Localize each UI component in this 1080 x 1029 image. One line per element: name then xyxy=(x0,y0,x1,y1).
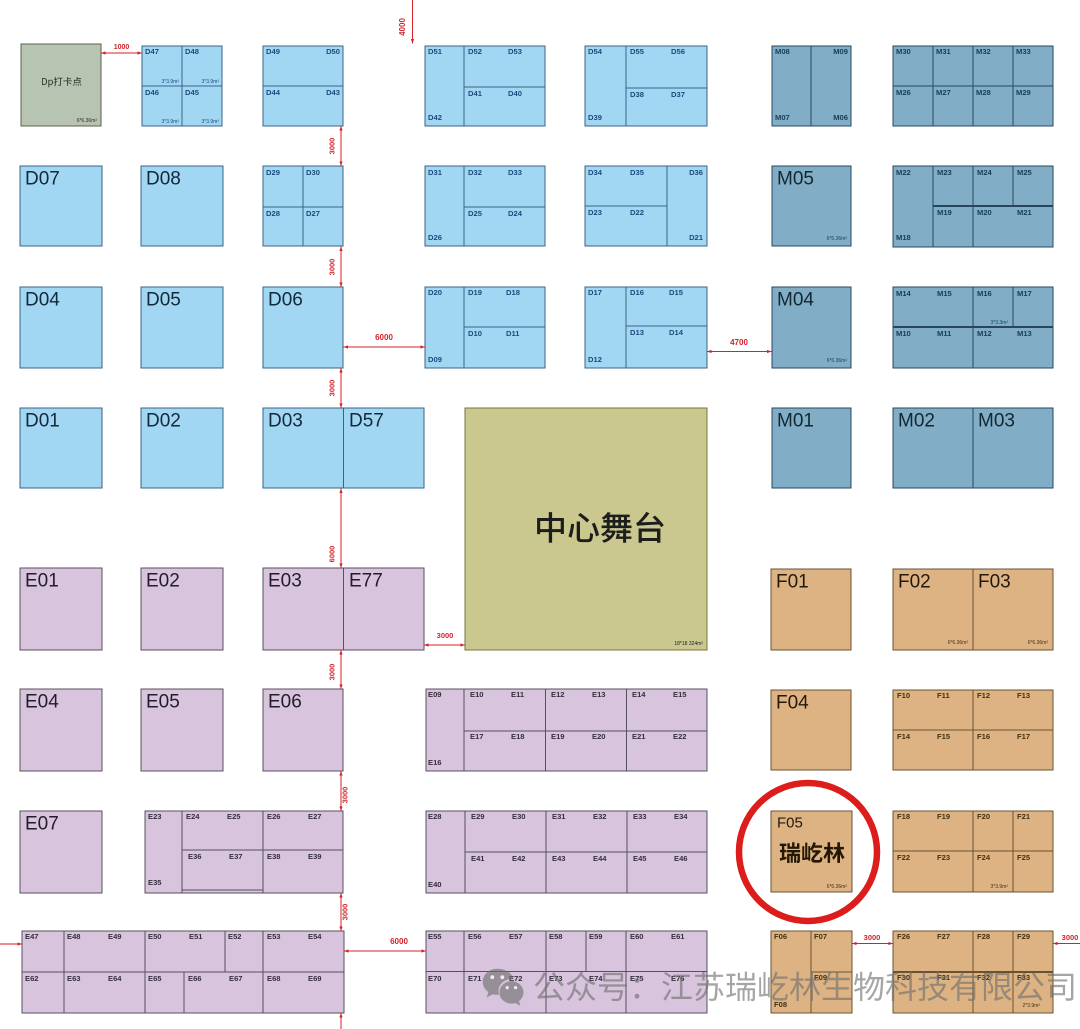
svg-text:E42: E42 xyxy=(512,854,526,863)
svg-text:6*6.36m²: 6*6.36m² xyxy=(827,358,848,364)
svg-text:F07: F07 xyxy=(814,932,827,941)
svg-text:M06: M06 xyxy=(833,113,848,122)
svg-text:E68: E68 xyxy=(267,974,281,983)
svg-text:E26: E26 xyxy=(267,812,281,821)
svg-text:F02: F02 xyxy=(898,572,931,593)
svg-text:F06: F06 xyxy=(774,932,787,941)
svg-text:3000: 3000 xyxy=(341,904,350,921)
svg-text:E66: E66 xyxy=(188,974,202,983)
svg-text:F10: F10 xyxy=(897,691,910,700)
svg-text:D13: D13 xyxy=(630,328,644,337)
svg-text:3000: 3000 xyxy=(328,138,337,155)
svg-text:E34: E34 xyxy=(674,812,688,821)
svg-text:6000: 6000 xyxy=(375,333,393,342)
svg-text:D32: D32 xyxy=(468,168,482,177)
svg-text:F08: F08 xyxy=(774,1000,787,1009)
svg-text:E10: E10 xyxy=(470,690,484,699)
svg-text:D41: D41 xyxy=(468,89,483,98)
svg-text:E69: E69 xyxy=(308,974,322,983)
svg-text:3000: 3000 xyxy=(1062,933,1079,942)
svg-text:D25: D25 xyxy=(468,209,483,218)
svg-text:F11: F11 xyxy=(937,691,950,700)
svg-text:D27: D27 xyxy=(306,209,320,218)
svg-text:D49: D49 xyxy=(266,47,280,56)
svg-text:M17: M17 xyxy=(1017,289,1032,298)
svg-text:D57: D57 xyxy=(349,411,384,432)
svg-text:E54: E54 xyxy=(308,932,322,941)
svg-text:E45: E45 xyxy=(633,854,647,863)
svg-text:6*6.36m²: 6*6.36m² xyxy=(827,236,848,242)
svg-text:D18: D18 xyxy=(506,288,520,297)
svg-text:D31: D31 xyxy=(428,168,443,177)
svg-text:D15: D15 xyxy=(669,288,684,297)
svg-text:D09: D09 xyxy=(428,355,442,364)
svg-text:3000: 3000 xyxy=(341,787,350,804)
svg-text:M29: M29 xyxy=(1016,88,1031,97)
svg-text:M13: M13 xyxy=(1017,329,1032,338)
svg-text:E04: E04 xyxy=(25,692,59,713)
svg-text:E67: E67 xyxy=(229,974,243,983)
svg-text:E29: E29 xyxy=(471,812,485,821)
svg-text:E48: E48 xyxy=(67,932,81,941)
svg-text:3*3.9m²: 3*3.9m² xyxy=(990,884,1008,890)
svg-text:E71: E71 xyxy=(468,974,482,983)
svg-text:E64: E64 xyxy=(108,974,122,983)
svg-text:M15: M15 xyxy=(937,289,953,298)
svg-text:6*6.36m²: 6*6.36m² xyxy=(77,118,98,124)
svg-text:E15: E15 xyxy=(673,690,687,699)
svg-text:D46: D46 xyxy=(145,88,159,97)
svg-text:E57: E57 xyxy=(509,932,523,941)
svg-text:3000: 3000 xyxy=(328,380,337,397)
svg-text:D34: D34 xyxy=(588,168,603,177)
svg-text:D14: D14 xyxy=(669,328,684,337)
svg-text:D47: D47 xyxy=(145,47,159,56)
svg-text:D23: D23 xyxy=(588,208,602,217)
svg-text:E33: E33 xyxy=(633,812,647,821)
svg-text:F28: F28 xyxy=(977,932,990,941)
svg-text:F29: F29 xyxy=(1017,932,1030,941)
svg-text:3*3.9m²: 3*3.9m² xyxy=(161,119,179,125)
svg-text:D35: D35 xyxy=(630,168,645,177)
svg-text:M23: M23 xyxy=(937,168,952,177)
svg-text:D45: D45 xyxy=(185,88,200,97)
svg-text:M07: M07 xyxy=(775,113,790,122)
svg-text:D50: D50 xyxy=(326,47,340,56)
svg-text:M27: M27 xyxy=(936,88,951,97)
svg-text:E28: E28 xyxy=(428,812,442,821)
svg-text:6*6.36m²: 6*6.36m² xyxy=(948,640,969,646)
svg-text:D53: D53 xyxy=(508,47,522,56)
svg-text:D11: D11 xyxy=(506,329,520,338)
svg-text:M24: M24 xyxy=(977,168,993,177)
svg-text:E56: E56 xyxy=(468,932,482,941)
svg-text:E61: E61 xyxy=(671,932,685,941)
svg-text:E12: E12 xyxy=(551,690,565,699)
svg-text:F01: F01 xyxy=(776,572,809,593)
svg-text:D38: D38 xyxy=(630,90,644,99)
svg-text:4000: 4000 xyxy=(398,18,407,36)
svg-text:E36: E36 xyxy=(188,852,202,861)
svg-text:E65: E65 xyxy=(148,974,162,983)
svg-text:E37: E37 xyxy=(229,852,243,861)
svg-text:E06: E06 xyxy=(268,692,302,713)
svg-text:3000: 3000 xyxy=(864,933,881,942)
svg-text:F16: F16 xyxy=(977,732,990,741)
svg-text:M19: M19 xyxy=(937,208,952,217)
svg-text:E11: E11 xyxy=(511,690,525,699)
svg-text:D24: D24 xyxy=(508,209,523,218)
svg-text:E62: E62 xyxy=(25,974,39,983)
svg-text:E18: E18 xyxy=(511,732,525,741)
svg-text:E22: E22 xyxy=(673,732,687,741)
svg-text:D28: D28 xyxy=(266,209,280,218)
svg-text:E30: E30 xyxy=(512,812,526,821)
svg-text:F22: F22 xyxy=(897,853,910,862)
svg-text:D08: D08 xyxy=(146,169,181,190)
svg-text:E09: E09 xyxy=(428,690,442,699)
svg-text:E46: E46 xyxy=(674,854,688,863)
svg-text:F18: F18 xyxy=(897,812,910,821)
svg-text:D36: D36 xyxy=(689,168,703,177)
svg-text:E53: E53 xyxy=(267,932,281,941)
svg-text:D26: D26 xyxy=(428,233,442,242)
svg-text:F20: F20 xyxy=(977,812,990,821)
svg-text:D17: D17 xyxy=(588,288,602,297)
svg-text:D20: D20 xyxy=(428,288,442,297)
svg-text:F12: F12 xyxy=(977,691,990,700)
svg-text:E41: E41 xyxy=(471,854,485,863)
svg-text:E44: E44 xyxy=(593,854,607,863)
svg-text:E55: E55 xyxy=(428,932,442,941)
svg-text:E59: E59 xyxy=(589,932,603,941)
svg-text:E20: E20 xyxy=(592,732,606,741)
svg-text:M04: M04 xyxy=(777,290,814,311)
svg-text:6000: 6000 xyxy=(328,546,337,563)
svg-text:M14: M14 xyxy=(896,289,912,298)
svg-text:E40: E40 xyxy=(428,880,442,889)
svg-text:M01: M01 xyxy=(777,411,814,432)
svg-text:D48: D48 xyxy=(185,47,199,56)
svg-text:E38: E38 xyxy=(267,852,281,861)
svg-text:D44: D44 xyxy=(266,88,281,97)
svg-text:6000: 6000 xyxy=(390,937,408,946)
svg-text:E43: E43 xyxy=(552,854,566,863)
svg-text:3*3.9m²: 3*3.9m² xyxy=(201,119,219,125)
svg-text:D19: D19 xyxy=(468,288,482,297)
svg-text:E01: E01 xyxy=(25,571,59,592)
svg-text:6*6.36m²: 6*6.36m² xyxy=(1028,640,1049,646)
svg-text:E50: E50 xyxy=(148,932,162,941)
svg-text:M32: M32 xyxy=(976,47,991,56)
svg-text:E39: E39 xyxy=(308,852,322,861)
svg-text:D30: D30 xyxy=(306,168,320,177)
svg-text:F14: F14 xyxy=(897,732,911,741)
svg-text:E27: E27 xyxy=(308,812,322,821)
svg-text:F26: F26 xyxy=(897,932,910,941)
svg-text:E77: E77 xyxy=(349,571,383,592)
svg-text:M03: M03 xyxy=(978,411,1015,432)
svg-text:E02: E02 xyxy=(146,571,180,592)
svg-text:E25: E25 xyxy=(227,812,241,821)
svg-text:E31: E31 xyxy=(552,812,566,821)
svg-text:D56: D56 xyxy=(671,47,685,56)
svg-text:F03: F03 xyxy=(978,572,1011,593)
svg-text:E49: E49 xyxy=(108,932,122,941)
svg-text:E32: E32 xyxy=(593,812,607,821)
svg-text:3*3.9m²: 3*3.9m² xyxy=(161,79,179,85)
svg-text:3000: 3000 xyxy=(328,664,337,681)
svg-text:D16: D16 xyxy=(630,288,644,297)
svg-text:M18: M18 xyxy=(896,233,911,242)
svg-text:D07: D07 xyxy=(25,169,60,190)
svg-text:E63: E63 xyxy=(67,974,81,983)
svg-text:M08: M08 xyxy=(775,47,790,56)
svg-text:M12: M12 xyxy=(977,329,992,338)
svg-text:D54: D54 xyxy=(588,47,603,56)
svg-text:M05: M05 xyxy=(777,169,814,190)
svg-text:D33: D33 xyxy=(508,168,522,177)
svg-text:E05: E05 xyxy=(146,692,180,713)
svg-text:D42: D42 xyxy=(428,113,442,122)
svg-text:M22: M22 xyxy=(896,168,911,177)
svg-text:D37: D37 xyxy=(671,90,685,99)
svg-text:E52: E52 xyxy=(228,932,242,941)
svg-text:M16: M16 xyxy=(977,289,992,298)
svg-text:M33: M33 xyxy=(1016,47,1031,56)
svg-text:D21: D21 xyxy=(689,233,704,242)
svg-text:E60: E60 xyxy=(630,932,644,941)
svg-text:M26: M26 xyxy=(896,88,911,97)
svg-text:E07: E07 xyxy=(25,814,59,835)
svg-text:F17: F17 xyxy=(1017,732,1030,741)
svg-text:D22: D22 xyxy=(630,208,644,217)
svg-text:D03: D03 xyxy=(268,411,303,432)
svg-text:E23: E23 xyxy=(148,812,162,821)
svg-text:F13: F13 xyxy=(1017,691,1030,700)
svg-text:E17: E17 xyxy=(470,732,484,741)
svg-text:M25: M25 xyxy=(1017,168,1033,177)
svg-text:1000: 1000 xyxy=(114,44,130,51)
svg-text:18*18 324m²: 18*18 324m² xyxy=(674,641,703,647)
svg-text:M20: M20 xyxy=(977,208,992,217)
svg-text:E19: E19 xyxy=(551,732,565,741)
svg-text:E70: E70 xyxy=(428,974,442,983)
svg-text:F25: F25 xyxy=(1017,853,1031,862)
svg-text:M11: M11 xyxy=(937,329,952,338)
svg-text:F21: F21 xyxy=(1017,812,1031,821)
svg-text:D06: D06 xyxy=(268,290,303,311)
svg-text:E03: E03 xyxy=(268,571,302,592)
svg-text:D02: D02 xyxy=(146,411,181,432)
svg-text:M02: M02 xyxy=(898,411,935,432)
svg-text:F04: F04 xyxy=(776,693,809,714)
svg-text:D10: D10 xyxy=(468,329,482,338)
svg-text:D39: D39 xyxy=(588,113,602,122)
svg-text:D04: D04 xyxy=(25,290,60,311)
svg-text:D51: D51 xyxy=(428,47,443,56)
svg-text:M10: M10 xyxy=(896,329,911,338)
svg-text:D40: D40 xyxy=(508,89,522,98)
svg-text:F15: F15 xyxy=(937,732,951,741)
svg-text:D01: D01 xyxy=(25,411,60,432)
svg-text:D29: D29 xyxy=(266,168,280,177)
svg-text:D55: D55 xyxy=(630,47,645,56)
svg-text:M31: M31 xyxy=(936,47,952,56)
svg-text:D43: D43 xyxy=(326,88,340,97)
svg-text:3000: 3000 xyxy=(437,631,454,640)
svg-text:3000: 3000 xyxy=(328,259,337,276)
svg-text:M21: M21 xyxy=(1017,208,1033,217)
svg-text:E13: E13 xyxy=(592,690,606,699)
svg-text:6*6.36m²: 6*6.36m² xyxy=(827,884,848,890)
svg-text:D12: D12 xyxy=(588,355,602,364)
svg-text:D05: D05 xyxy=(146,290,181,311)
svg-text:E21: E21 xyxy=(632,732,646,741)
svg-text:F27: F27 xyxy=(937,932,950,941)
svg-text:F19: F19 xyxy=(937,812,950,821)
svg-text:E35: E35 xyxy=(148,878,162,887)
svg-text:E24: E24 xyxy=(186,812,200,821)
svg-text:E58: E58 xyxy=(549,932,563,941)
svg-text:D52: D52 xyxy=(468,47,482,56)
svg-text:3*3.3m²: 3*3.3m² xyxy=(990,320,1008,326)
svg-text:M28: M28 xyxy=(976,88,991,97)
svg-text:M09: M09 xyxy=(833,47,848,56)
svg-text:E47: E47 xyxy=(25,932,39,941)
svg-text:4700: 4700 xyxy=(730,338,748,347)
svg-text:E16: E16 xyxy=(428,758,442,767)
svg-text:2*3.9m²: 2*3.9m² xyxy=(1022,1003,1040,1009)
svg-text:F24: F24 xyxy=(977,853,991,862)
svg-text:F23: F23 xyxy=(937,853,950,862)
svg-text:F05: F05 xyxy=(777,814,803,831)
svg-text:M30: M30 xyxy=(896,47,911,56)
svg-text:3*3.9m²: 3*3.9m² xyxy=(201,79,219,85)
svg-text:E51: E51 xyxy=(189,932,203,941)
svg-text:E14: E14 xyxy=(632,690,646,699)
